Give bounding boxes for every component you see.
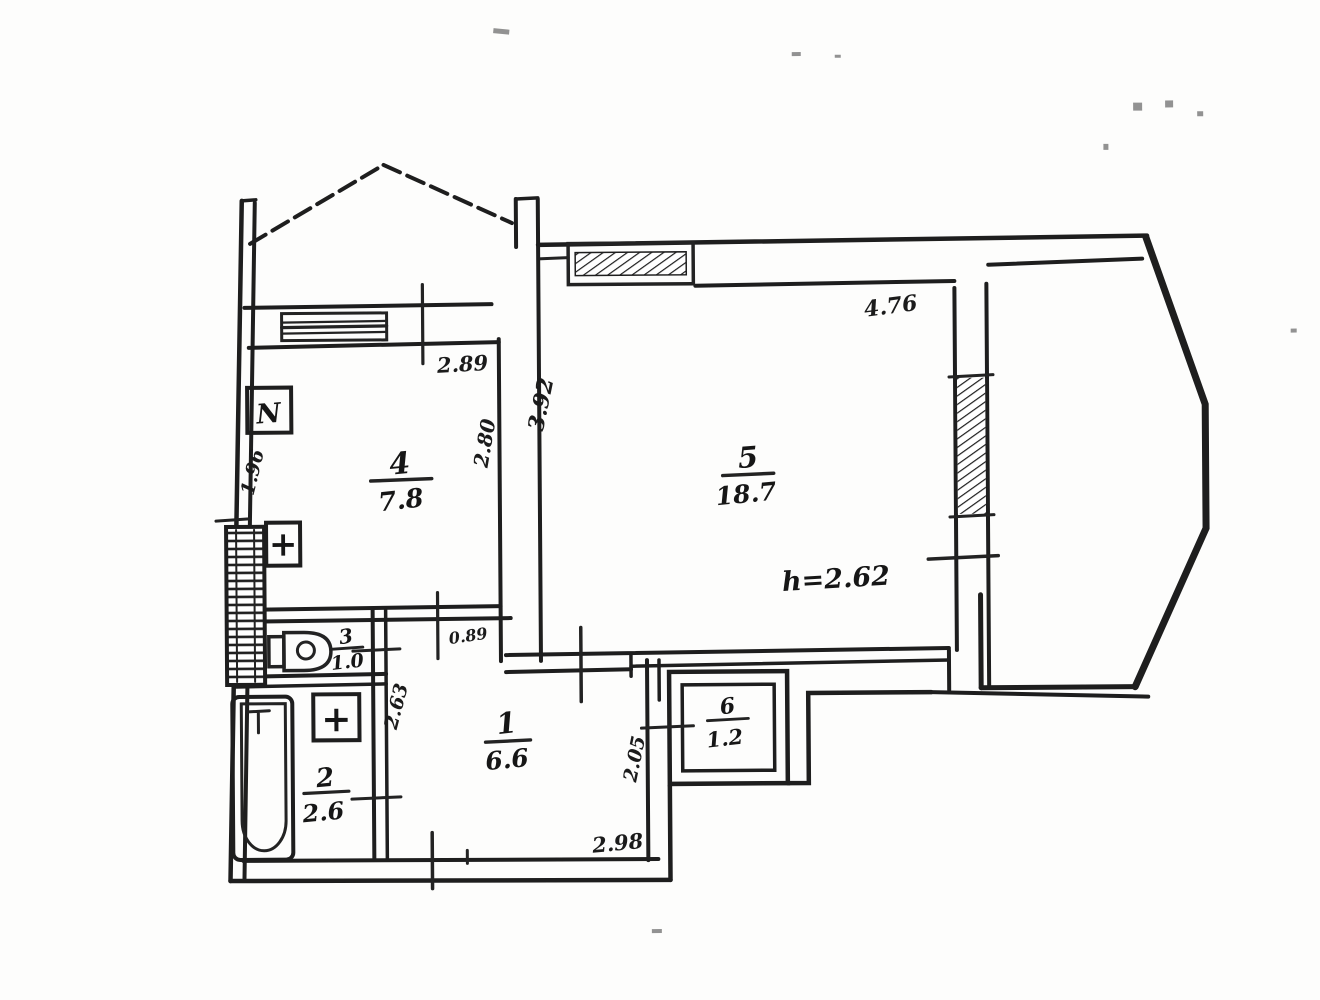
wall-stub-right-cap bbox=[516, 198, 538, 199]
wall-living-right-outer bbox=[986, 284, 989, 688]
wall-kitchen-top-inner bbox=[249, 342, 499, 348]
wall-right-lower-outer bbox=[670, 786, 671, 880]
room-5-area: 18.7 bbox=[714, 477, 778, 512]
wall-divider-kitchen-side bbox=[499, 339, 501, 661]
room-5-number: 5 bbox=[736, 440, 759, 475]
scan-speck bbox=[835, 55, 841, 58]
room-4-label: 4 7.8 bbox=[370, 446, 432, 519]
floor-plan-scan: N + + 4 7.8 5 18.7 3 1.0 bbox=[0, 0, 1320, 1000]
floor-plan-drawing: N + + 4 7.8 5 18.7 3 1.0 bbox=[0, 0, 1320, 1000]
scan-speck bbox=[1291, 329, 1297, 333]
room-1-underline bbox=[486, 740, 531, 742]
room-5-underline bbox=[723, 473, 774, 475]
wall-step-outer bbox=[787, 692, 932, 783]
balcony-door-opening-tick bbox=[422, 285, 423, 364]
room-2-number: 2 bbox=[314, 763, 336, 795]
room-1-area: 6.6 bbox=[484, 743, 530, 776]
bay-balcony-left-edge bbox=[981, 595, 982, 688]
bath-sink-plus-icon: + bbox=[321, 698, 351, 740]
room-3-area: 1.0 bbox=[330, 649, 365, 675]
bay-balcony-top-inner bbox=[988, 259, 1142, 265]
kitchen-window-line2 bbox=[282, 326, 387, 328]
scan-speck bbox=[1197, 111, 1203, 116]
wall-kitchen-bottom-lower bbox=[229, 618, 511, 622]
toilet-bowl-icon bbox=[284, 632, 331, 670]
wall-living-right-inner bbox=[954, 288, 957, 650]
kitchen-sink-plus-icon: + bbox=[269, 525, 298, 565]
dim-living-left-depth: 3.92 bbox=[523, 376, 559, 434]
living-door-tick bbox=[581, 628, 582, 702]
room-4-number: 4 bbox=[388, 446, 412, 483]
wall-living-top-inner bbox=[695, 281, 954, 286]
left-wall-tick bbox=[216, 519, 249, 521]
scan-speck bbox=[1165, 100, 1173, 107]
room-6-area: 1.2 bbox=[705, 724, 744, 753]
room-3-number: 3 bbox=[337, 623, 354, 649]
room-6-underline bbox=[707, 718, 748, 720]
scan-speck bbox=[493, 28, 509, 35]
dim-kitchen-left-side: 1.96 bbox=[237, 447, 269, 497]
dim-kitchen-top-width: 2.89 bbox=[435, 350, 489, 378]
wall-kitchen-bottom-upper bbox=[241, 606, 501, 610]
bay-balcony-outline bbox=[1132, 237, 1207, 686]
dim-living-top-width: 4.76 bbox=[862, 290, 918, 323]
room-6-label: 6 1.2 bbox=[705, 693, 749, 753]
room-2-underline bbox=[304, 791, 349, 793]
dim-closet-left-side: 2.05 bbox=[619, 734, 650, 785]
vent-shaft bbox=[226, 527, 265, 685]
dim-kitchen-right-depth: 2.80 bbox=[469, 417, 501, 470]
toilet-cistern-icon bbox=[269, 637, 284, 667]
wall-living-bottom-upper bbox=[506, 648, 949, 655]
stove-label: N bbox=[254, 398, 283, 431]
wall-living-bottom-lower-right bbox=[631, 660, 949, 666]
room-2-area: 2.6 bbox=[300, 795, 346, 828]
ceiling-height-note: h=2.62 bbox=[781, 561, 891, 598]
wall-living-bottom-lower-left bbox=[506, 669, 631, 672]
bath-door-tick bbox=[352, 797, 401, 799]
scan-speck bbox=[1133, 103, 1142, 111]
dim-kitchen-door-width: 0.89 bbox=[447, 624, 488, 648]
room-1-label: 1 6.6 bbox=[484, 705, 531, 776]
scan-speck bbox=[1103, 144, 1108, 150]
dim-hall-bottom-width: 2.98 bbox=[590, 828, 645, 858]
gable-balcony-left-line bbox=[250, 165, 385, 244]
living-window-hatch bbox=[575, 252, 686, 276]
wall-wc-bath-right-a bbox=[373, 610, 375, 860]
wall-bottom-outer bbox=[231, 878, 671, 883]
scan-speck bbox=[792, 52, 801, 56]
gable-balcony-right-line bbox=[384, 164, 512, 224]
wall-wc-bath-right-b bbox=[386, 610, 388, 860]
room-4-area: 7.8 bbox=[377, 483, 425, 518]
wall-left-stub-cap bbox=[242, 200, 256, 201]
room-6-number: 6 bbox=[718, 693, 737, 721]
balcony-floor-line bbox=[244, 304, 491, 308]
wall-top-inner-left-stub bbox=[538, 258, 568, 259]
room-2-label: 2 2.6 bbox=[300, 762, 349, 828]
shower-mark-icon bbox=[248, 711, 269, 733]
living-right-window-hatch bbox=[957, 378, 986, 514]
kitchen-window-line1 bbox=[282, 321, 387, 323]
toilet-drain-icon bbox=[297, 642, 314, 659]
room-4-underline bbox=[371, 479, 432, 481]
room-1-number: 1 bbox=[494, 705, 518, 741]
room-5-label: 5 18.7 bbox=[714, 440, 778, 512]
room-3-label: 3 1.0 bbox=[329, 623, 365, 675]
bay-balcony-bottom bbox=[981, 687, 1135, 688]
wall-hall-right-inner bbox=[647, 660, 648, 860]
wall-under-balcony-outer bbox=[931, 691, 1148, 699]
kitchen-window-line3 bbox=[282, 332, 387, 334]
wall-bottom-inner bbox=[243, 858, 658, 862]
scan-speck bbox=[652, 929, 662, 933]
